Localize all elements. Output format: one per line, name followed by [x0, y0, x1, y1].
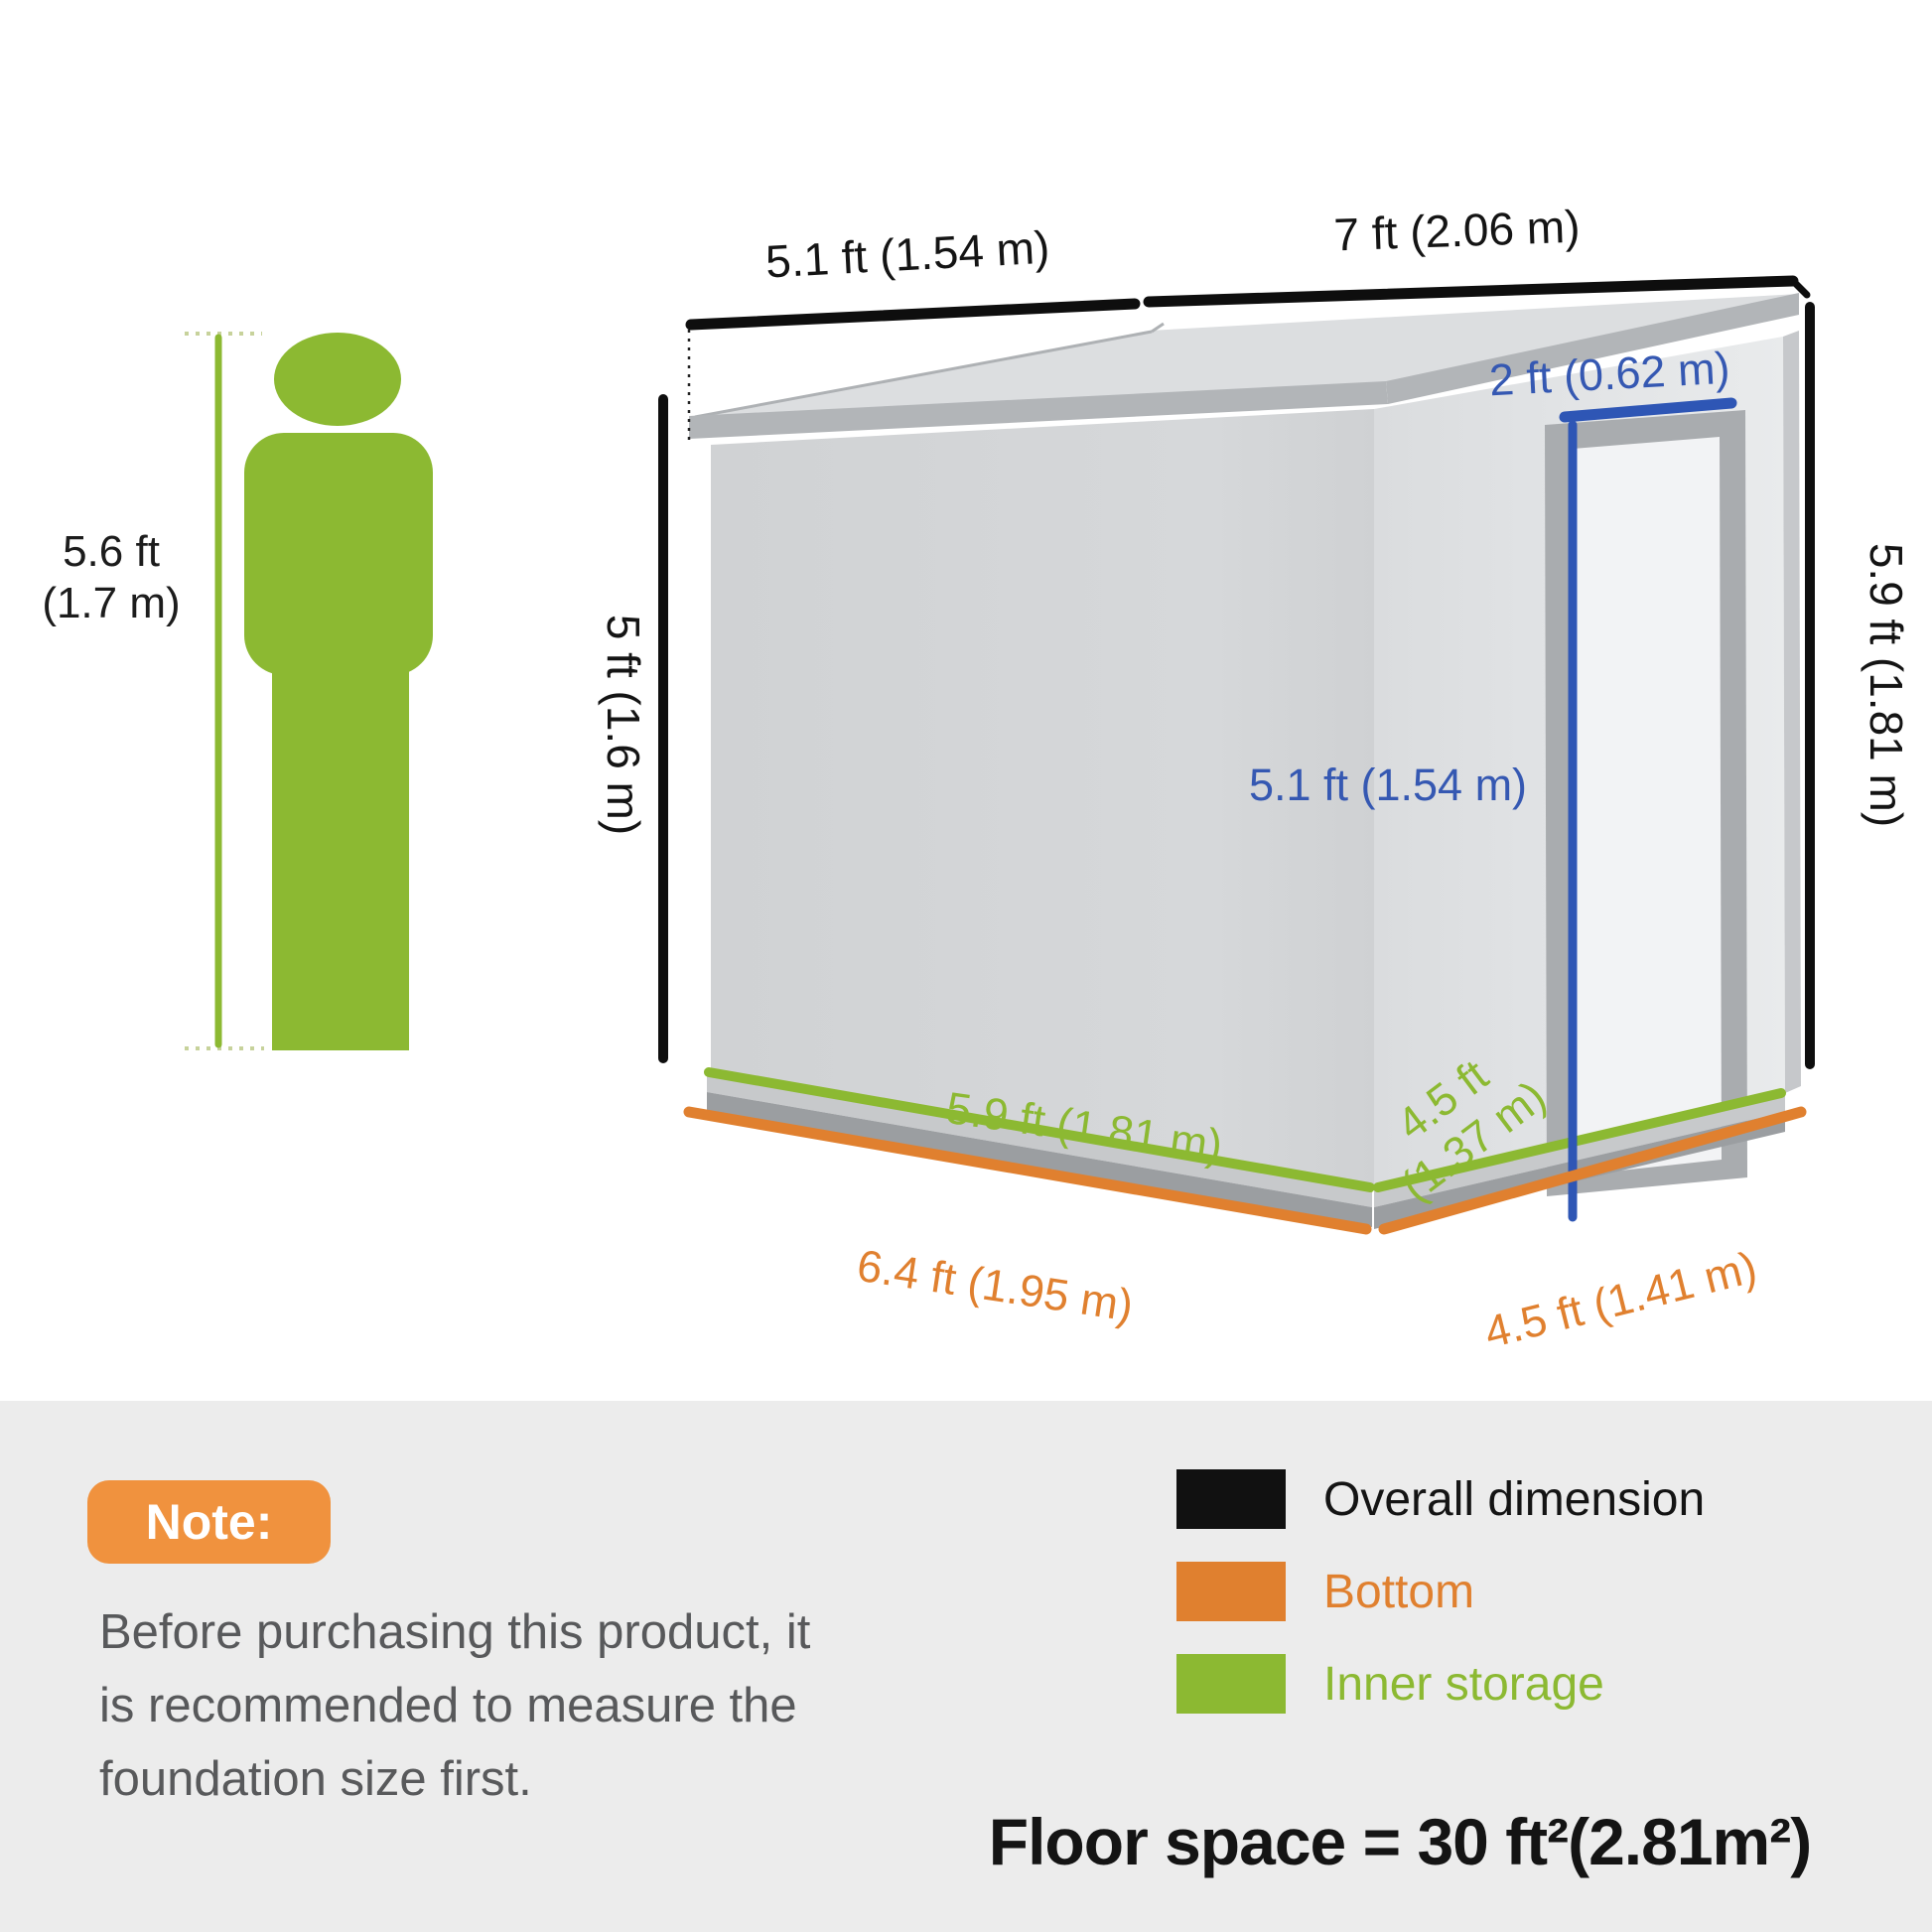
overall-dimension-swatch — [1176, 1469, 1286, 1529]
shed-dimension-diagram: 5.6 ft (1.7 m) — [0, 0, 1932, 1932]
note-paragraph: Before purchasing this product, it is re… — [99, 1595, 810, 1816]
shed-drawing — [689, 293, 1801, 1229]
legend-row-inner-storage: Inner storage — [1176, 1654, 1705, 1714]
legend-row-overall: Overall dimension — [1176, 1469, 1705, 1529]
person-figure: 5.6 ft (1.7 m) — [42, 333, 433, 1050]
roof-left-dim-line — [691, 304, 1135, 325]
roof-right-dim-label: 7 ft (2.06 m) — [1333, 201, 1582, 261]
person-head — [274, 333, 401, 426]
roof-left-dim-label: 5.1 ft (1.54 m) — [764, 221, 1051, 288]
roof-right-dim-line — [1149, 281, 1793, 302]
legend-row-bottom: Bottom — [1176, 1562, 1705, 1621]
note-line-2: is recommended to measure the — [99, 1669, 810, 1742]
note-line-1: Before purchasing this product, it — [99, 1595, 810, 1669]
inner-storage-swatch — [1176, 1654, 1286, 1714]
left-height-dim-label: 5 ft (1.6 m) — [598, 615, 649, 835]
shed-door-panel — [1573, 437, 1722, 1175]
person-height-label-line2: (1.7 m) — [42, 579, 180, 627]
floor-space-text: Floor space = 30 ft²(2.81m²) — [874, 1804, 1926, 1879]
inner-storage-label: Inner storage — [1323, 1657, 1604, 1712]
bottom-swatch — [1176, 1562, 1286, 1621]
note-line-3: foundation size first. — [99, 1742, 810, 1816]
door-height-label: 5.1 ft (1.54 m) — [1249, 759, 1527, 810]
person-legs — [272, 645, 409, 1050]
bottom-side-label: 6.4 ft (1.95 m) — [854, 1240, 1137, 1331]
note-badge: Note: — [87, 1480, 331, 1564]
right-height-dim-label: 5.9 ft (1.81 m) — [1861, 543, 1912, 827]
info-section: Note: Before purchasing this product, it… — [0, 1401, 1932, 1932]
bottom-label: Bottom — [1323, 1565, 1474, 1619]
roof-right-dim-tick — [1793, 281, 1807, 295]
overall-dimension-label: Overall dimension — [1323, 1472, 1705, 1527]
legend: Overall dimension Bottom Inner storage — [1176, 1469, 1705, 1746]
bottom-front-label: 4.5 ft (1.41 m) — [1479, 1241, 1761, 1357]
shed-right-edge — [1783, 331, 1801, 1093]
person-torso — [244, 433, 433, 675]
person-height-label-line1: 5.6 ft — [63, 527, 160, 576]
